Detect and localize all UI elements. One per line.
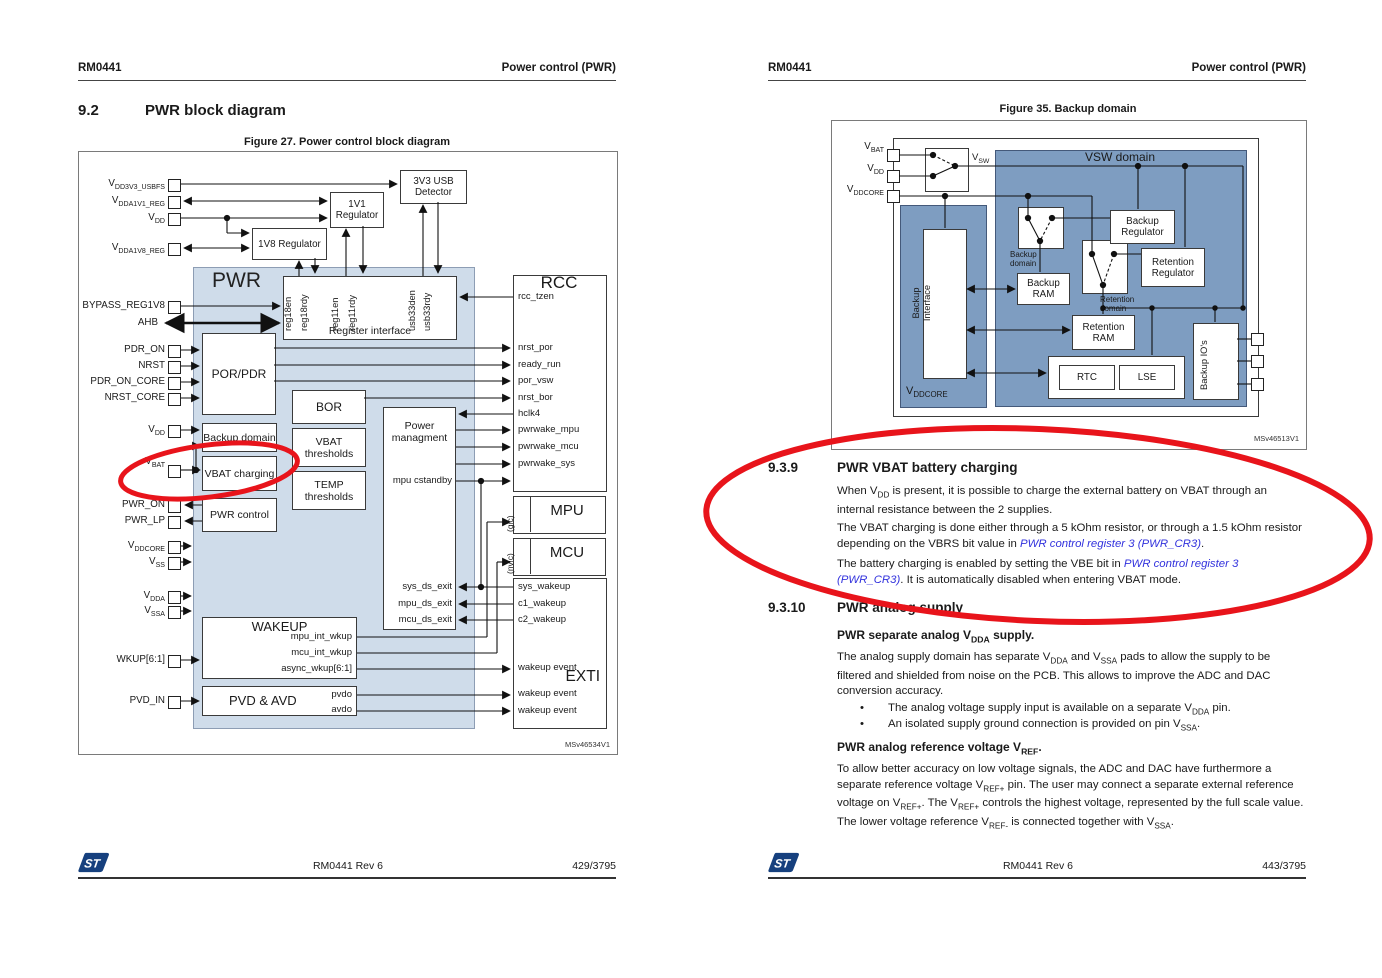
nrst-por-signal: nrst_por	[518, 342, 553, 353]
io-pad	[1251, 378, 1264, 391]
subscript: DDA	[1192, 707, 1209, 716]
usb33den-signal: usb33den	[407, 279, 418, 331]
pin-pad	[168, 557, 181, 570]
subscript: REF+	[900, 803, 921, 812]
rcc-tzen-signal: rcc_tzen	[518, 291, 554, 302]
pwr-block-title: PWR	[212, 269, 261, 293]
mpu-int-wkup-signal: mpu_int_wkup	[242, 631, 352, 642]
figure35-caption: Figure 35. Backup domain	[831, 103, 1305, 115]
avdo-signal: avdo	[272, 704, 352, 715]
subscript: REF	[1021, 746, 1038, 756]
section-title: PWR block diagram	[145, 102, 286, 119]
section-9310-number: 9.3.10	[768, 600, 806, 615]
vbat-charging-box: VBAT charging	[202, 456, 277, 491]
mcu-title: MCU	[530, 547, 604, 558]
pin-nrst: NRST	[70, 360, 165, 371]
section-939-paragraph-1: When VDD is present, it is possible to c…	[837, 484, 1307, 518]
subscript: SSA	[1101, 656, 1117, 665]
pin-pad	[168, 696, 181, 709]
section-939-title: PWR VBAT battery charging	[837, 460, 1018, 475]
pin-wkup: WKUP[6:1]	[70, 654, 165, 665]
subscript: SSA	[1154, 822, 1170, 831]
pin-vss: VSS	[70, 556, 165, 571]
subscript: DD3V3_USBFS	[115, 184, 165, 191]
gic-label: (gic)	[505, 496, 516, 532]
section-number: 9.2	[78, 102, 99, 119]
retention-domain-switch-box	[1082, 240, 1128, 294]
exti-title: EXTI	[520, 671, 600, 682]
section-9310-paragraph-2: To allow better accuracy on low voltage …	[837, 762, 1307, 834]
pin-pad	[168, 465, 181, 478]
io-pad	[1251, 333, 1264, 346]
por-pdr-box: POR/PDR	[202, 333, 276, 415]
pin-pad	[168, 591, 181, 604]
st-logo: ST	[78, 850, 110, 875]
pin-pad	[168, 541, 181, 554]
reg18en-signal: reg18en	[283, 279, 294, 331]
subscript: BAT	[152, 462, 165, 469]
wakeup-event-3: wakeup event	[518, 705, 577, 716]
mpu-title: MPU	[530, 505, 604, 516]
pin-nrst-core: NRST_CORE	[70, 392, 165, 403]
pin-vdda1v1-reg: VDDA1V1_REG	[70, 195, 165, 210]
vsw-domain-title: VSW domain	[995, 152, 1245, 163]
figure27-caption: Figure 27. Power control block diagram	[78, 136, 616, 148]
pin-pad	[168, 516, 181, 529]
pin-vdd-2: VDD	[70, 424, 165, 439]
ready-run-signal: ready_run	[518, 359, 561, 370]
vsw-net-label: VSW	[972, 152, 989, 167]
page-number-right: 443/3795	[1206, 860, 1306, 872]
pin-pad	[168, 213, 181, 226]
figure35-watermark: MSv46513V1	[1089, 434, 1299, 443]
subscript: DD	[155, 218, 165, 225]
mcu-ds-exit-signal: mcu_ds_exit	[362, 614, 452, 625]
sys-wakeup-signal: sys_wakeup	[518, 581, 570, 592]
nrst-bor-signal: nrst_bor	[518, 392, 553, 403]
subscript: REF-	[989, 822, 1008, 831]
pin-pad	[168, 500, 181, 513]
pin-bypass-reg1v8: BYPASS_REG1V8	[70, 300, 165, 311]
pin-pad	[168, 361, 181, 374]
pin-pad	[168, 301, 181, 314]
usb33rdy-signal: usb33rdy	[422, 279, 433, 331]
regulator-1v8-box: 1V8 Regulator	[252, 228, 327, 260]
subscript: DDA	[150, 596, 165, 603]
pin-vbat: VBAT	[70, 456, 165, 471]
retention-ram-box: Retention RAM	[1072, 315, 1135, 350]
pin-pad	[168, 196, 181, 209]
pin-pad	[168, 425, 181, 438]
mpu-ds-exit-signal: mpu_ds_exit	[362, 598, 452, 609]
pwr-control-box: PWR control	[202, 498, 277, 532]
subscript: DDCORE	[853, 190, 884, 197]
footer-rev-left: RM0441 Rev 6	[278, 860, 418, 872]
pwrwake-sys-signal: pwrwake_sys	[518, 458, 575, 469]
pin-vdda1v8-reg: VDDA1V8_REG	[70, 242, 165, 257]
retention-regulator-box: Retention Regulator	[1141, 248, 1205, 287]
footer-rule-right	[768, 877, 1306, 879]
subscript: DD	[878, 490, 890, 499]
subscript: DD	[155, 430, 165, 437]
por-vsw-signal: por_vsw	[518, 375, 553, 386]
pin-vdd: VDD	[70, 212, 165, 227]
document-canvas: RM0441 Power control (PWR) 9.2 PWR block…	[0, 0, 1382, 978]
analog-vdda-subhead: PWR separate analog VDDA supply.	[837, 628, 1034, 644]
subscript: REF+	[958, 803, 979, 812]
running-head-left: Power control (PWR)	[316, 62, 616, 74]
vddcore-domain-label: VDDCORE	[906, 386, 948, 400]
pin-vddcore-35: VDDCORE	[795, 184, 884, 199]
doc-id-right: RM0441	[768, 62, 811, 74]
reg11en-signal: reg11en	[330, 279, 341, 331]
page-number-left: 429/3795	[516, 860, 616, 872]
header-rule-right	[768, 80, 1306, 81]
subscript: DDA1V8_REG	[118, 248, 165, 255]
subscript: DDCORE	[134, 546, 165, 553]
sys-ds-exit-signal: sys_ds_exit	[362, 581, 452, 592]
section-9310-paragraph-1: The analog supply domain has separate VD…	[837, 650, 1307, 700]
temp-thresholds-box: TEMP thresholds	[292, 471, 366, 510]
cross-reference-link[interactable]: PWR control register 3 (PWR_CR3)	[1020, 538, 1201, 550]
header-rule-left	[78, 80, 616, 81]
pwrwake-mpu-signal: pwrwake_mpu	[518, 424, 579, 435]
pin-pad	[887, 190, 900, 203]
vbat-thresholds-box: VBAT thresholds	[292, 428, 366, 467]
pin-vdda: VDDA	[70, 590, 165, 605]
reg11rdy-signal: reg11rdy	[347, 279, 358, 331]
async-wkup-signal: async_wkup[6:1]	[242, 663, 352, 674]
subscript: DDCORE	[913, 390, 947, 399]
backup-domain-box: Backup domain	[202, 423, 277, 452]
rtc-box: RTC	[1059, 365, 1115, 390]
hclk4-signal: hclk4	[518, 408, 540, 419]
pin-vddcore: VDDCORE	[70, 540, 165, 555]
cross-reference-link[interactable]: PWR control register 3 (PWR_CR3)	[837, 558, 1238, 586]
footer-rev-right: RM0441 Rev 6	[968, 860, 1108, 872]
subscript: REF+	[983, 784, 1004, 793]
backup-regulator-box: Backup Regulator	[1110, 210, 1175, 244]
pin-pad	[168, 179, 181, 192]
footer-rule-left	[78, 877, 616, 879]
section-9310-title: PWR analog supply	[837, 600, 963, 615]
subscript: BAT	[871, 147, 884, 154]
subscript: SS	[156, 562, 165, 569]
pin-vbat-35: VBAT	[795, 141, 884, 156]
backup-domain-switch-label: Backup domain	[1010, 250, 1058, 268]
nvic-label: (nvic)	[505, 538, 516, 574]
st-logo: ST	[768, 850, 800, 875]
section-939-paragraph-2: The VBAT charging is done either through…	[837, 521, 1307, 552]
running-head-right: Power control (PWR)	[1006, 62, 1306, 74]
lse-box: LSE	[1119, 365, 1175, 390]
pin-pad	[887, 170, 900, 183]
backup-ram-box: Backup RAM	[1017, 273, 1070, 305]
regulator-1v1-box: 1V1 Regulator	[330, 192, 384, 228]
subscript: DDA	[1050, 656, 1067, 665]
backup-interface-label: Backup Interface	[911, 273, 933, 333]
rcc-title: RCC	[513, 277, 605, 288]
pin-vssa: VSSA	[70, 605, 165, 620]
pin-pvd-in: PVD_IN	[70, 695, 165, 706]
pin-pad	[168, 606, 181, 619]
pin-pad	[168, 243, 181, 256]
pwrwake-mcu-signal: pwrwake_mcu	[518, 441, 579, 452]
pvdo-signal: pvdo	[272, 689, 352, 700]
register-interface-label: Register interface	[329, 325, 411, 337]
mpu-cstandby-signal: mpu cstandby	[366, 475, 452, 486]
figure27-watermark: MSv46534V1	[400, 740, 610, 749]
pin-pwr-lp: PWR_LP	[70, 515, 165, 526]
pin-pad	[168, 377, 181, 390]
bus-ahb: AHB	[70, 317, 158, 328]
pin-pwr-on: PWR_ON	[70, 499, 165, 510]
wakeup-event-2: wakeup event	[518, 688, 577, 699]
section-939-paragraph-3: The battery charging is enabled by setti…	[837, 557, 1307, 588]
subscript: SSA	[151, 611, 165, 618]
subscript: DD	[874, 169, 884, 176]
pin-vdd3v3-usbfs: VDD3V3_USBFS	[70, 178, 165, 193]
pin-pad	[168, 345, 181, 358]
doc-id-left: RM0441	[78, 62, 121, 74]
pin-pad	[887, 149, 900, 162]
pin-pdr-on-core: PDR_ON_CORE	[70, 376, 165, 387]
reg18rdy-signal: reg18rdy	[299, 279, 310, 331]
bullet-vssa-pin: An isolated supply ground connection is …	[888, 717, 1308, 736]
subscript: DDA1V1_REG	[118, 201, 165, 208]
pin-vdd-35: VDD	[795, 163, 884, 178]
backup-domain-switch-box	[1018, 207, 1064, 249]
usb-detector-box: 3V3 USB Detector	[400, 170, 467, 204]
pin-pdr-on: PDR_ON	[70, 344, 165, 355]
c2-wakeup-signal: c2_wakeup	[518, 614, 566, 625]
mcu-int-wkup-signal: mcu_int_wkup	[242, 647, 352, 658]
pin-pad	[168, 655, 181, 668]
subscript: SW	[978, 158, 989, 165]
c1-wakeup-signal: c1_wakeup	[518, 598, 566, 609]
backup-ios-label: Backup IO's	[1199, 330, 1210, 390]
power-management-box: Power managment	[383, 407, 456, 630]
supply-switch-box	[925, 148, 969, 192]
section-939-number: 9.3.9	[768, 460, 798, 475]
bor-box: BOR	[292, 390, 366, 424]
io-pad	[1251, 355, 1264, 368]
analog-vref-subhead: PWR analog reference voltage VREF.	[837, 740, 1042, 756]
retention-domain-switch-label: Retention domain	[1100, 295, 1150, 313]
subscript: DDA	[971, 634, 990, 644]
subscript: SSA	[1181, 723, 1197, 732]
pin-pad	[168, 393, 181, 406]
